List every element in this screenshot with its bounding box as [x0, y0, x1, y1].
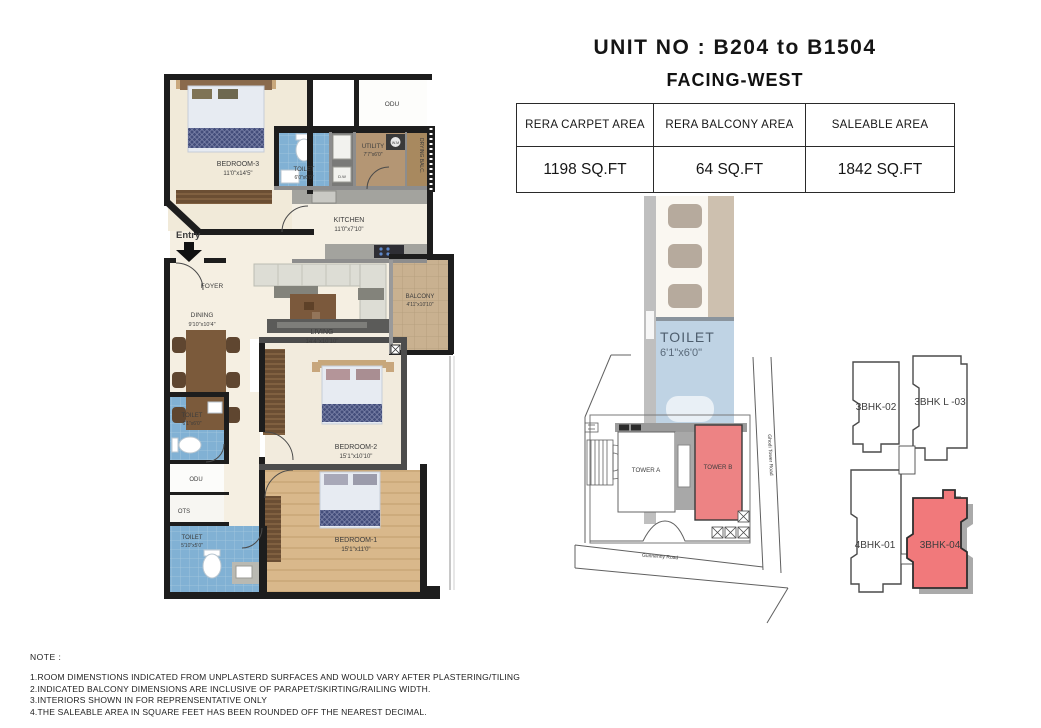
utility-label: UTILITY [362, 144, 384, 150]
dining-label: DINING [191, 312, 214, 319]
foyer-label: FOYER [201, 283, 224, 290]
ghost-chair [668, 244, 702, 268]
col-rera-balcony-area: RERA BALCONY AREA [654, 104, 806, 147]
keyplan-label-3bhk-l-03: 3BHK L -03 [914, 397, 966, 408]
ghost-chair [668, 284, 702, 308]
ghost-window [646, 311, 654, 339]
col-rera-carpet-area: RERA CARPET AREA [517, 104, 654, 147]
kitchen-dims: 11'0"x7'10" [334, 227, 363, 233]
road-right-label: Ghodi Tower Road [766, 434, 774, 476]
toilet-top-dims: 6'0"x6'0" [294, 175, 313, 181]
keyplan-label-3bhk-04: 3BHK-04 [920, 540, 961, 551]
note-line: 4.THE SALEABLE AREA IN SQUARE FEET HAS B… [30, 707, 670, 719]
ots-label: OTS [178, 509, 190, 515]
dining-dims: 9'10"x10'4" [188, 322, 215, 328]
washing-machine-label: W.M [392, 141, 399, 145]
value-saleable-area: 1842 SQ.FT [806, 147, 955, 193]
dish-washer-label: D.W [338, 174, 346, 179]
unit-3bhk-04-highlight [907, 490, 967, 588]
area-table: RERA CARPET AREA RERA BALCONY AREA SALEA… [516, 103, 955, 193]
living-label: LIVING [311, 329, 334, 336]
toilet-mid-label: TOILET [182, 413, 203, 419]
col-saleable-area: SALEABLE AREA [806, 104, 955, 147]
ghost-dining-floor [656, 196, 734, 317]
bedroom1-label: BEDROOM-1 [335, 537, 378, 544]
entry-arrow-stem [184, 242, 194, 250]
ghost-chair [668, 204, 702, 228]
living-dims: 14'4"x10'10" [306, 339, 339, 345]
utility-dims: 7'7"x6'0" [363, 152, 382, 158]
bedroom1-dims: 15'1"x11'0" [341, 547, 370, 553]
keyplan-label-4bhk-01: 4BHK-01 [855, 540, 896, 551]
area-table-value-row: 1198 SQ.FT 64 SQ.FT 1842 SQ.FT [517, 147, 955, 193]
odu-top-label: ODU [385, 101, 400, 108]
bedroom2-label: BEDROOM-2 [335, 444, 378, 451]
odu-mid-label: ODU [189, 477, 202, 483]
tower-b-label: TOWER B [704, 464, 733, 471]
ghost-table [708, 196, 734, 317]
note-line: 1.ROOM DIMENSTIONS INDICATED FROM UNPLAS… [30, 672, 670, 684]
toilet-mid-dims: 6'1"x6'0" [182, 421, 201, 427]
balcony-label: BALCONY [406, 294, 435, 300]
kitchen-label: KITCHEN [334, 217, 365, 224]
bedroom2-dims: 15'1"x10'10" [340, 454, 373, 460]
balcony-dims: 4'11"x10'10" [406, 302, 433, 308]
toilet-top-label: TOILET [294, 167, 315, 173]
corridor-block [631, 425, 641, 431]
corridor-block [619, 425, 629, 431]
floor-plan: BEDROOM-3 11'0"x14'5" ODU TOILET 6'0"x6'… [162, 72, 462, 632]
keyplan-core [899, 446, 915, 474]
tower-b-highlight [695, 425, 742, 520]
value-rera-carpet-area: 1198 SQ.FT [517, 147, 654, 193]
facing-label: FACING-WEST [520, 70, 950, 91]
unit-3bhk-l-03-outline [913, 356, 967, 460]
notes-title: NOTE : [30, 652, 670, 662]
note-line: 3.INTERIORS SHOWN IN FOR REPRENSENTATIVE… [30, 695, 670, 707]
ghost-toilet-label: TOILET [660, 329, 715, 345]
toilet-bottom-label: TOILET [182, 535, 203, 541]
notes-block: NOTE : 1.ROOM DIMENSTIONS INDICATED FROM… [30, 652, 670, 718]
core-inner [678, 445, 690, 487]
tower-a-label: TOWER A [632, 467, 661, 474]
bedroom3-label: BEDROOM-3 [217, 161, 260, 168]
bedroom3-dims: 11'0"x14'5" [223, 171, 252, 177]
note-line: 2.INDICATED BALCONY DIMENSIONS ARE INCLU… [30, 684, 670, 696]
keyplan-label-3bhk-02: 3BHK-02 [856, 402, 897, 413]
site-plan: TOWER A TOWER B Ghodi Tower Road Gunnenn… [565, 345, 815, 625]
value-rera-balcony-area: 64 SQ.FT [654, 147, 806, 193]
page-title: UNIT NO : B204 to B1504 [520, 36, 950, 60]
road-bottom-label: Gunnenny Road [642, 553, 679, 562]
area-table-header-row: RERA CARPET AREA RERA BALCONY AREA SALEA… [517, 104, 955, 147]
unit-4bhk-01-outline [851, 470, 901, 592]
toilet-bottom-dims: 5'10"x5'0" [181, 543, 203, 549]
entry-label: Entry [176, 230, 201, 241]
key-plan: 3BHK-02 3BHK L -03 4BHK-01 3BHK-04 [843, 348, 1003, 603]
drying-balcony-label: DRYING BALC. [418, 138, 424, 173]
